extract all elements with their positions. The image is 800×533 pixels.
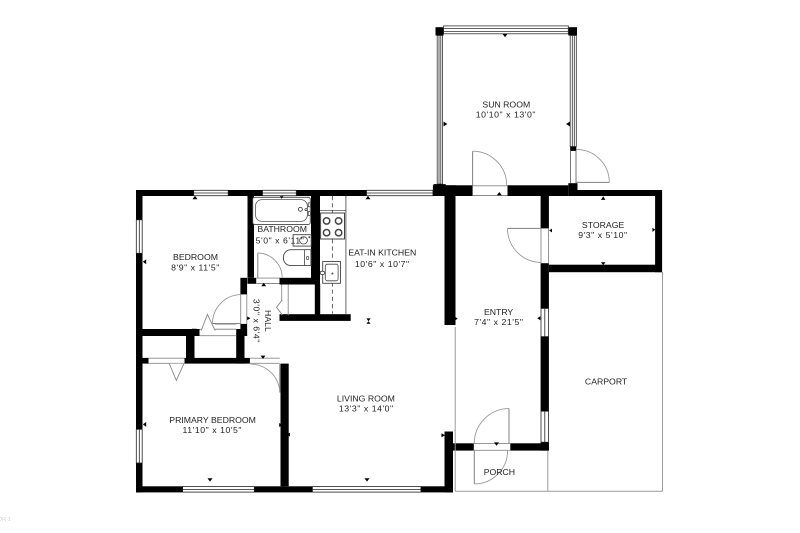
- svg-text:10'10" x 13'0": 10'10" x 13'0": [476, 110, 536, 120]
- svg-text:HALL: HALL: [263, 310, 273, 332]
- svg-text:5'0" x 6'11": 5'0" x 6'11": [256, 235, 305, 245]
- svg-text:STORAGE: STORAGE: [582, 220, 625, 230]
- svg-text:7'4" x 21'5": 7'4" x 21'5": [474, 317, 523, 327]
- svg-text:EAT-IN KITCHEN: EAT-IN KITCHEN: [348, 248, 416, 258]
- svg-text:CARPORT: CARPORT: [585, 377, 628, 387]
- svg-text:11'10" x 10'5": 11'10" x 10'5": [183, 425, 243, 435]
- svg-text:8'9" x 11'5": 8'9" x 11'5": [171, 263, 220, 273]
- svg-text:9'3" x 5'10": 9'3" x 5'10": [578, 230, 627, 240]
- svg-text:OR 1: OR 1: [0, 517, 11, 523]
- svg-text:BATHROOM: BATHROOM: [257, 224, 307, 234]
- svg-text:BEDROOM: BEDROOM: [173, 252, 218, 262]
- svg-text:SUN ROOM: SUN ROOM: [482, 100, 530, 110]
- svg-text:PORCH: PORCH: [484, 467, 515, 477]
- svg-text:ENTRY: ENTRY: [484, 307, 513, 317]
- svg-text:LIVING ROOM: LIVING ROOM: [337, 394, 395, 404]
- svg-text:3'0" x 6'4": 3'0" x 6'4": [251, 299, 261, 343]
- svg-text:13'3" x 14'0": 13'3" x 14'0": [339, 403, 394, 413]
- svg-text:10'6" x 10'7": 10'6" x 10'7": [355, 259, 410, 269]
- svg-text:PRIMARY BEDROOM: PRIMARY BEDROOM: [169, 415, 256, 425]
